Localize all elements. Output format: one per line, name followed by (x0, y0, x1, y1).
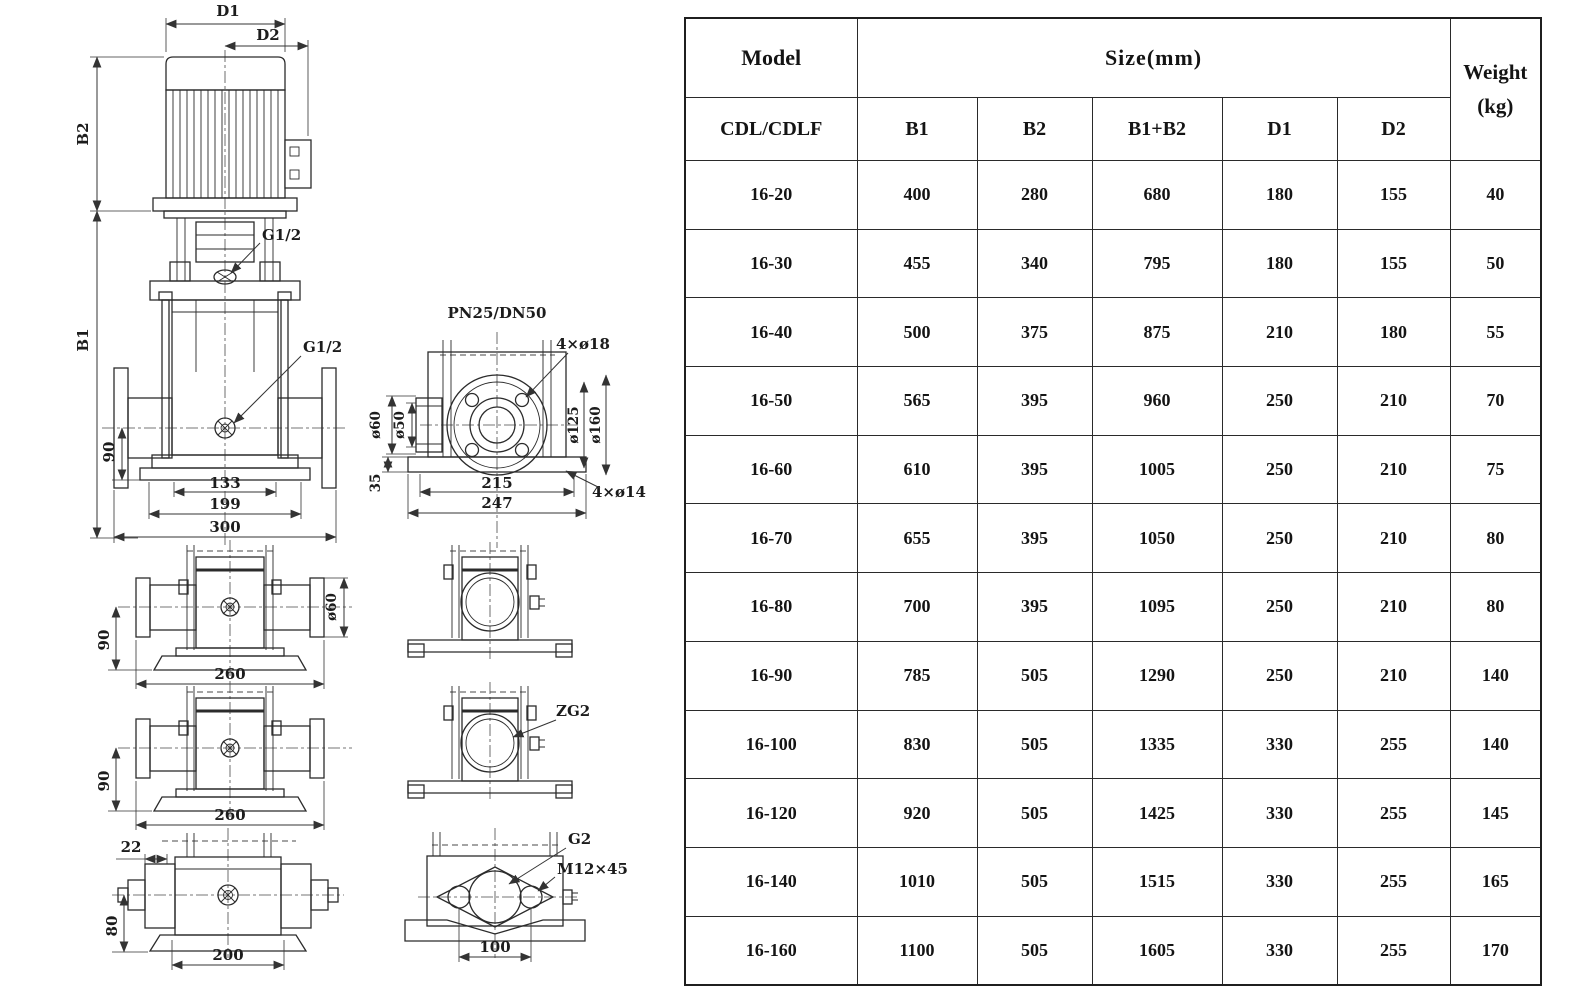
d1-cell: 330 (1222, 847, 1337, 916)
dim-label-35: 35 (368, 474, 384, 493)
table-row: 16-70 655 395 1050 250 210 80 (685, 504, 1541, 573)
model-cell: 16-90 (685, 641, 857, 710)
model-cell: 16-40 (685, 298, 857, 367)
dim-label-80: 80 (103, 916, 121, 937)
dim-label-d2: D2 (256, 26, 279, 44)
d1-cell: 180 (1222, 229, 1337, 298)
dia-label-60: ø60 (324, 593, 340, 621)
dim-label-260: 260 (214, 806, 245, 824)
b1b2-cell: 795 (1092, 229, 1222, 298)
table-row: 16-30 455 340 795 180 155 50 (685, 229, 1541, 298)
table-row: 16-100 830 505 1335 330 255 140 (685, 710, 1541, 779)
b1b2-cell: 960 (1092, 367, 1222, 436)
d2-cell: 210 (1337, 435, 1450, 504)
weight-cell: 80 (1450, 573, 1541, 642)
flange-detail-drawing: PN25/DN50 4×ø18 ø60 ø50 ø125 ø160 35 4×ø… (368, 304, 646, 548)
d2-cell: 255 (1337, 710, 1450, 779)
model-cell: 16-50 (685, 367, 857, 436)
size-header: Size(mm) (857, 18, 1450, 98)
weight-cell: 40 (1450, 161, 1541, 230)
table-row: 16-20 400 280 680 180 155 40 (685, 161, 1541, 230)
dim-label-b2: B2 (74, 122, 92, 145)
bolt-hole (466, 394, 479, 407)
b2-cell: 395 (977, 504, 1092, 573)
dia-label-125: ø125 (566, 406, 582, 443)
b1b2-cell: 1335 (1092, 710, 1222, 779)
d2-cell: 210 (1337, 367, 1450, 436)
table-row: 16-60 610 395 1005 250 210 75 (685, 435, 1541, 504)
model-cell: 16-30 (685, 229, 857, 298)
dim-label-300: 300 (209, 518, 240, 536)
b2-cell: 375 (977, 298, 1092, 367)
bolt-hole (516, 394, 529, 407)
b1b2-cell: 1005 (1092, 435, 1222, 504)
col-header-b2: B2 (977, 98, 1092, 161)
header-row-1: Model Size(mm) Weight (kg) (685, 18, 1541, 98)
dim-label-200: 200 (212, 946, 243, 964)
dim-label-247: 247 (481, 494, 512, 512)
b2-cell: 505 (977, 847, 1092, 916)
dia-label-160: ø160 (588, 406, 604, 443)
b1b2-cell: 1515 (1092, 847, 1222, 916)
b1-cell: 1100 (857, 916, 977, 985)
d1-cell: 250 (1222, 367, 1337, 436)
dim-label-260: 260 (214, 665, 245, 683)
b1b2-cell: 1290 (1092, 641, 1222, 710)
d2-cell: 210 (1337, 641, 1450, 710)
d2-cell: 180 (1337, 298, 1450, 367)
side-view-b-drawing: 90 260 (95, 681, 352, 830)
model-cell: 16-20 (685, 161, 857, 230)
bolt-label-4x14: 4×ø14 (592, 483, 646, 501)
d2-cell: 155 (1337, 161, 1450, 230)
d1-cell: 250 (1222, 573, 1337, 642)
model-cell: 16-120 (685, 779, 857, 848)
dim-label-133: 133 (209, 474, 240, 492)
b1-cell: 1010 (857, 847, 977, 916)
size-weight-table: Model Size(mm) Weight (kg) CDL/CDLF B1 B… (684, 17, 1542, 986)
bolt-label-4x18: 4×ø18 (556, 335, 610, 353)
d1-cell: 330 (1222, 916, 1337, 985)
b2-cell: 340 (977, 229, 1092, 298)
dim-label-100: 100 (479, 938, 510, 956)
table-row: 16-90 785 505 1290 250 210 140 (685, 641, 1541, 710)
dim-label-b1: B1 (74, 328, 92, 351)
d1-cell: 180 (1222, 161, 1337, 230)
thread-label-g2: G2 (568, 830, 591, 848)
d1-cell: 330 (1222, 710, 1337, 779)
dim-label-90: 90 (95, 771, 113, 792)
dim-label-90: 90 (100, 442, 118, 463)
b1-cell: 400 (857, 161, 977, 230)
d2-cell: 210 (1337, 573, 1450, 642)
d2-cell: 155 (1337, 229, 1450, 298)
col-header-b1: B1 (857, 98, 977, 161)
b1-cell: 700 (857, 573, 977, 642)
weight-header-unit: (kg) (1451, 90, 1541, 124)
d1-cell: 250 (1222, 435, 1337, 504)
d1-cell: 330 (1222, 779, 1337, 848)
weight-cell: 50 (1450, 229, 1541, 298)
flange-title: PN25/DN50 (448, 304, 547, 322)
weight-header: Weight (kg) (1450, 18, 1541, 161)
b1-cell: 785 (857, 641, 977, 710)
b1b2-cell: 875 (1092, 298, 1222, 367)
b1-cell: 500 (857, 298, 977, 367)
weight-cell: 55 (1450, 298, 1541, 367)
weight-cell: 140 (1450, 641, 1541, 710)
header-row-2: CDL/CDLF B1 B2 B1+B2 D1 D2 (685, 98, 1541, 161)
port-label-g12-top: G1/2 (262, 226, 301, 244)
b1b2-cell: 1095 (1092, 573, 1222, 642)
model-cell: 16-60 (685, 435, 857, 504)
table-row: 16-80 700 395 1095 250 210 80 (685, 573, 1541, 642)
bottom-view-drawing: 22 80 200 (103, 828, 344, 970)
pump-spec-sheet: { "colors": { "paper": "#ffffff", "ink":… (0, 0, 1586, 1000)
dimension-table: Model Size(mm) Weight (kg) CDL/CDLF B1 B… (684, 17, 1542, 986)
weight-cell: 140 (1450, 710, 1541, 779)
d2-cell: 255 (1337, 847, 1450, 916)
b2-cell: 505 (977, 641, 1092, 710)
bolt-hole (466, 444, 479, 457)
model-cell: 16-140 (685, 847, 857, 916)
table-row: 16-160 1100 505 1605 330 255 170 (685, 916, 1541, 985)
dim-label-199: 199 (209, 495, 240, 513)
pump-technical-drawings: D1 D2 B2 B1 90 G1/2 G1/2 133 199 300 PN2… (0, 0, 684, 1000)
model-cell: 16-160 (685, 916, 857, 985)
d1-cell: 250 (1222, 504, 1337, 573)
dim-label-d1: D1 (216, 2, 239, 20)
b1b2-cell: 1050 (1092, 504, 1222, 573)
model-cell: 16-80 (685, 573, 857, 642)
model-cell: 16-100 (685, 710, 857, 779)
b1b2-cell: 1425 (1092, 779, 1222, 848)
b2-cell: 505 (977, 779, 1092, 848)
b2-cell: 395 (977, 367, 1092, 436)
col-header-d2: D2 (1337, 98, 1450, 161)
d2-cell: 255 (1337, 779, 1450, 848)
b2-cell: 395 (977, 573, 1092, 642)
b2-cell: 395 (977, 435, 1092, 504)
b1b2-cell: 680 (1092, 161, 1222, 230)
b1b2-cell: 1605 (1092, 916, 1222, 985)
weight-cell: 70 (1450, 367, 1541, 436)
model-subheader: CDL/CDLF (685, 98, 857, 161)
weight-cell: 75 (1450, 435, 1541, 504)
bolt-hole (516, 444, 529, 457)
port-label-g12-mid: G1/2 (303, 338, 342, 356)
side-view-a-drawing: 90 260 ø60 (95, 540, 352, 689)
dia-label-50: ø50 (392, 411, 408, 439)
d2-cell: 255 (1337, 916, 1450, 985)
dim-label-22: 22 (121, 838, 142, 856)
dim-label-90: 90 (95, 630, 113, 651)
model-cell: 16-70 (685, 504, 857, 573)
weight-cell: 165 (1450, 847, 1541, 916)
thread-label-zg2: ZG2 (556, 702, 590, 720)
size-table-body: 16-20 400 280 680 180 155 40 16-30 455 3… (685, 161, 1541, 986)
weight-cell: 145 (1450, 779, 1541, 848)
b2-cell: 505 (977, 710, 1092, 779)
b1-cell: 610 (857, 435, 977, 504)
table-row: 16-120 920 505 1425 330 255 145 (685, 779, 1541, 848)
model-header: Model (685, 18, 857, 98)
table-row: 16-140 1010 505 1515 330 255 165 (685, 847, 1541, 916)
col-header-d1: D1 (1222, 98, 1337, 161)
b2-cell: 505 (977, 916, 1092, 985)
d1-cell: 210 (1222, 298, 1337, 367)
col-header-b1b2: B1+B2 (1092, 98, 1222, 161)
b2-cell: 280 (977, 161, 1092, 230)
b1-cell: 920 (857, 779, 977, 848)
b1-cell: 455 (857, 229, 977, 298)
port-view-b-drawing: ZG2 (408, 682, 590, 800)
b1-cell: 565 (857, 367, 977, 436)
d2-cell: 210 (1337, 504, 1450, 573)
dia-label-60: ø60 (368, 411, 384, 439)
table-row: 16-40 500 375 875 210 180 55 (685, 298, 1541, 367)
weight-header-label: Weight (1451, 56, 1541, 90)
table-row: 16-50 565 395 960 250 210 70 (685, 367, 1541, 436)
dim-label-215: 215 (481, 474, 512, 492)
d1-cell: 250 (1222, 641, 1337, 710)
b1-cell: 655 (857, 504, 977, 573)
b1-cell: 830 (857, 710, 977, 779)
pump-front-view-drawing: D1 D2 B2 B1 90 G1/2 G1/2 133 199 300 (74, 2, 348, 548)
port-view-c-drawing: G2 M12×45 100 (405, 828, 628, 962)
weight-cell: 80 (1450, 504, 1541, 573)
port-view-a-drawing (408, 542, 572, 662)
weight-cell: 170 (1450, 916, 1541, 985)
bolt-label-m12x45: M12×45 (557, 860, 628, 878)
